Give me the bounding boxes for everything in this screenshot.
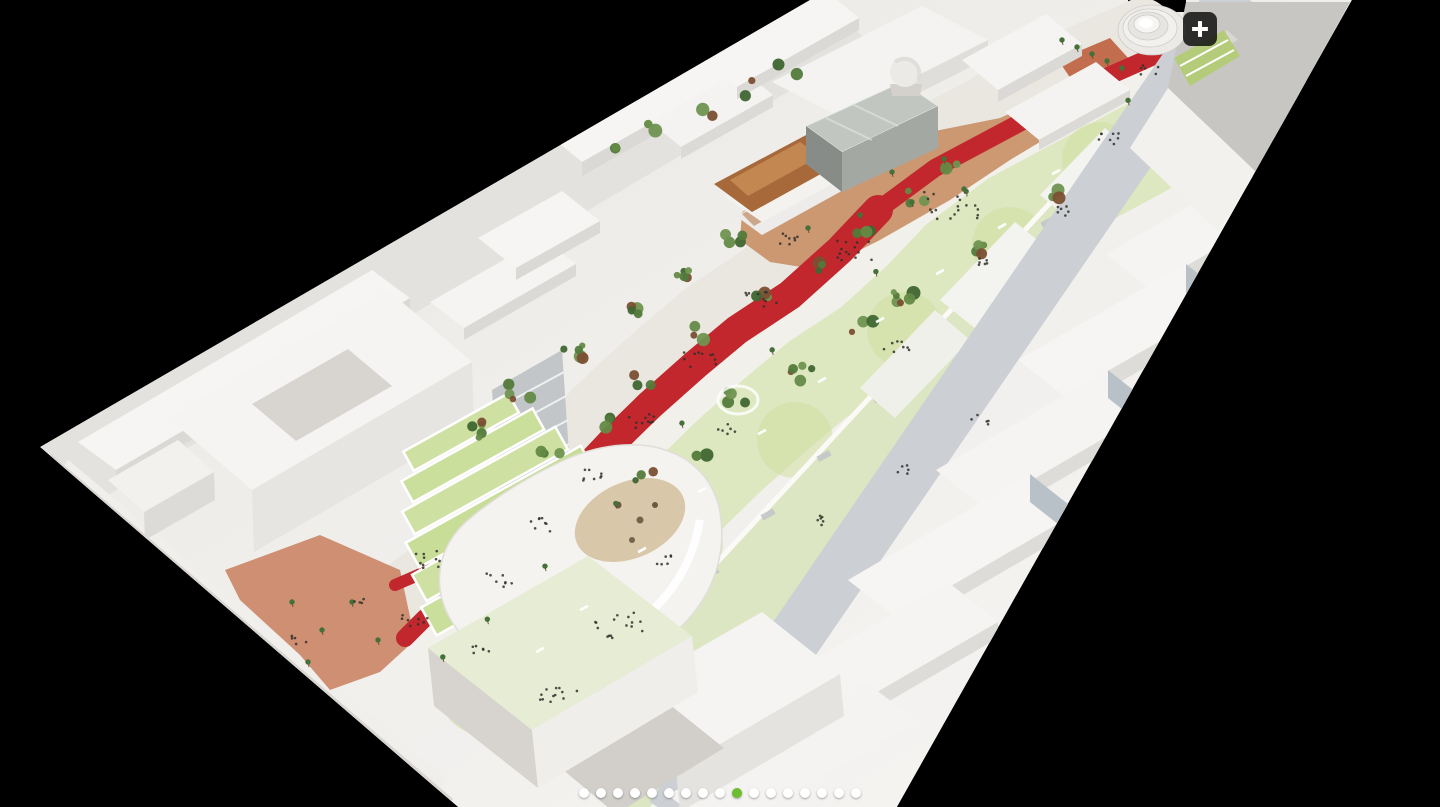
person [353,600,356,603]
person [422,621,425,624]
person [853,246,856,249]
person [794,239,797,242]
person [845,251,848,254]
carousel-dot-6[interactable] [664,788,674,798]
person [502,585,505,588]
person [648,413,651,416]
person [715,363,718,366]
person [488,650,491,653]
person [540,693,543,696]
person [734,430,737,433]
person [538,518,541,521]
carousel-dot-14[interactable] [800,788,810,798]
person [838,252,841,255]
person [541,517,544,520]
person [897,471,900,474]
person [1064,214,1067,217]
person [978,264,981,267]
person [641,422,644,425]
tree [940,162,953,175]
person [697,351,700,354]
person [1067,210,1070,213]
person [627,616,630,619]
person [906,464,909,467]
person [656,563,659,566]
tree [953,160,961,168]
tree [697,333,710,346]
person [957,205,960,208]
person [291,635,294,638]
tree [748,77,755,84]
tree [791,68,803,80]
person [870,258,873,261]
person [422,553,425,556]
palm-tree [305,659,310,664]
person [714,358,717,361]
person [775,302,778,305]
person [712,353,715,356]
carousel-dot-11[interactable] [749,788,759,798]
person [595,621,598,624]
person [867,240,870,243]
person [1142,64,1145,67]
carousel-dot-1[interactable] [579,788,589,798]
carousel-dot-9[interactable] [715,788,725,798]
person [822,520,825,523]
person [978,261,981,264]
person [530,520,533,523]
carousel-dot-15[interactable] [817,788,827,798]
person [927,198,930,201]
person [683,358,686,361]
person [610,634,613,637]
person [422,567,425,570]
palm-tree [961,186,966,191]
person [721,429,724,432]
person [726,433,729,436]
person [423,556,426,559]
person [936,218,939,221]
person [635,421,638,424]
person [596,627,599,630]
palm-tree [319,627,324,632]
carousel-dot-8[interactable] [698,788,708,798]
person [641,630,644,633]
person [472,652,475,655]
tree [524,392,536,404]
person [554,694,557,697]
tree [599,421,612,434]
tree [674,272,681,279]
person [1140,73,1143,76]
person [779,242,782,245]
person [294,637,297,640]
person [840,248,843,251]
person [584,468,587,471]
palm-tree [289,599,294,604]
person [976,414,979,417]
person [763,305,766,308]
carousel-dot-4[interactable] [630,788,640,798]
person [840,259,843,262]
tree [477,418,486,427]
person [729,428,732,431]
person [1112,132,1115,135]
tree [637,470,646,479]
person [949,217,952,220]
person [757,293,760,296]
person [545,688,548,691]
palm-tree [1074,44,1079,49]
person [1060,208,1063,211]
tree [740,90,751,101]
tree [904,293,915,304]
person [976,214,979,217]
person [836,240,839,243]
person [923,191,926,194]
person [854,256,857,259]
person [701,352,704,355]
tree [1053,191,1066,204]
tree [788,364,798,374]
person [558,687,561,690]
person [893,351,896,354]
person [417,618,420,621]
person [409,625,412,628]
person [782,232,785,235]
person [1155,73,1158,76]
person [534,527,537,530]
tree [696,103,709,116]
person [896,340,899,343]
person [856,241,859,244]
person [900,340,903,343]
person [976,217,979,220]
tree [772,58,784,70]
person [956,195,959,198]
tree [707,111,717,121]
person [359,601,362,604]
person [906,346,909,349]
person [930,211,933,214]
person [1057,211,1060,214]
person [764,291,767,294]
person [744,292,747,295]
person [630,625,633,628]
person [510,582,513,585]
palm-tree [679,420,684,425]
person [632,611,635,614]
person [482,648,485,651]
tree [632,477,638,483]
palm-tree [857,212,862,217]
person [845,241,848,244]
tree [685,267,692,274]
person [435,558,438,561]
person [935,209,938,212]
person [1100,132,1103,135]
tree [737,231,747,241]
palm-tree [889,169,894,174]
plus-icon [1191,20,1209,38]
carousel-dots [579,788,861,798]
person [611,637,614,640]
palm-tree [805,225,810,230]
person [1117,132,1120,135]
person [616,614,619,617]
tree [510,396,517,403]
tree [818,261,825,268]
person [932,193,935,196]
person [793,237,796,240]
person [762,298,765,301]
tree [720,229,731,240]
tree [503,379,514,390]
person [929,208,932,211]
person [437,565,440,568]
palm-tree [1104,58,1109,63]
palm-tree [613,501,618,506]
person [549,530,552,533]
person [1144,67,1147,70]
person [717,428,720,431]
person [305,641,308,644]
tree [536,446,547,457]
person [848,253,851,256]
palm-tree [873,269,878,274]
person [987,420,990,423]
person [764,300,767,303]
tree [815,267,822,274]
tree [740,398,750,408]
model-photo-illustration [0,0,1440,807]
tree [808,365,815,372]
person [978,257,981,260]
person [669,554,672,557]
person [628,416,631,419]
person [438,560,441,563]
palm-tree [1089,51,1094,56]
person [666,562,669,565]
person [788,243,791,246]
carousel-dot-5[interactable] [647,788,657,798]
tree [692,451,702,461]
tree [798,362,806,370]
person [1157,66,1160,69]
person [600,475,603,478]
person [660,563,663,566]
tree [632,380,642,390]
person [634,426,637,429]
palm-tree [375,637,380,642]
person [974,204,977,207]
person [709,354,712,357]
person [485,572,488,575]
person [651,420,654,423]
tree [860,226,872,238]
person [901,465,904,468]
person [908,349,911,352]
tree [612,144,620,152]
person [489,574,492,577]
tree [629,370,639,380]
person [726,423,729,426]
person [891,342,894,345]
person [588,469,591,472]
person [426,617,429,620]
dome-building [890,57,922,96]
person [693,352,696,355]
person [501,574,504,577]
person [689,366,692,369]
person [1140,67,1143,70]
person [561,691,564,694]
person [987,423,990,426]
person [1117,137,1120,140]
person [857,251,860,254]
person [652,415,655,418]
person [785,235,788,238]
image-viewer: + [0,0,1440,807]
person [644,416,647,419]
person [582,479,585,482]
person [647,420,650,423]
tree [689,321,700,332]
tree [897,299,904,306]
person [407,619,410,622]
carousel-dot-16[interactable] [834,788,844,798]
tree [849,329,855,335]
palm-tree [909,199,914,204]
person [576,690,579,693]
tree [700,448,713,461]
tree [891,289,897,295]
person [902,346,905,349]
person [401,614,404,617]
person [625,624,628,627]
person [907,469,910,472]
tree [919,195,930,206]
person [906,472,909,475]
person [970,418,973,421]
person [631,621,634,624]
person [1065,205,1068,208]
tree [560,346,567,353]
tree [726,388,737,399]
tree [648,467,658,477]
tree [554,448,564,458]
person [836,256,839,259]
person [593,478,596,481]
person [549,700,552,703]
person [362,598,365,601]
palm-tree [1119,65,1124,70]
palm-tree [941,156,946,161]
person [796,236,799,239]
person [475,645,478,648]
person [600,472,603,475]
person [959,199,962,202]
person [985,259,988,262]
person [977,208,980,211]
person [819,517,822,520]
zoom-in-button[interactable]: + [1183,12,1217,46]
carousel-dot-17[interactable] [851,788,861,798]
person [664,555,667,558]
person [401,617,404,620]
carousel-dot-3[interactable] [613,788,623,798]
tree [905,188,912,195]
person [965,204,968,207]
tree [476,434,483,441]
tree [976,248,987,259]
person [613,618,616,621]
person [957,209,960,212]
tree [646,380,656,390]
person [291,637,294,640]
tree [634,309,643,318]
person [986,262,989,265]
person [471,645,474,648]
person [883,348,886,351]
person [504,582,507,585]
person [417,623,420,626]
person [639,620,642,623]
carousel-dot-13[interactable] [783,788,793,798]
person [495,580,498,583]
palm-tree [440,654,445,659]
person [435,550,438,553]
person [748,292,751,295]
person [1109,139,1112,142]
person [562,697,565,700]
person [1113,143,1116,146]
person [953,213,956,216]
person [555,687,558,690]
palm-tree [1125,98,1130,103]
carousel-dot-12[interactable] [766,788,776,798]
palm-tree [485,616,490,621]
person [415,553,418,556]
tree [467,421,477,431]
person [422,564,425,567]
tree [648,124,662,138]
palm-tree [1059,37,1064,42]
person [788,237,791,240]
tree [794,375,806,387]
person [544,522,547,525]
tree [690,332,697,339]
person [1057,206,1060,209]
person [683,351,686,354]
tree [575,346,583,354]
person [539,698,542,701]
person [295,643,298,646]
person [816,519,819,522]
carousel-dot-10-active[interactable] [732,788,742,798]
person [419,562,422,565]
person [541,698,544,701]
palm-tree [769,347,774,352]
palm-tree [542,563,547,568]
tree [751,291,762,302]
carousel-dot-2[interactable] [596,788,606,798]
person [820,524,823,527]
carousel-dot-7[interactable] [681,788,691,798]
person [1098,138,1101,141]
